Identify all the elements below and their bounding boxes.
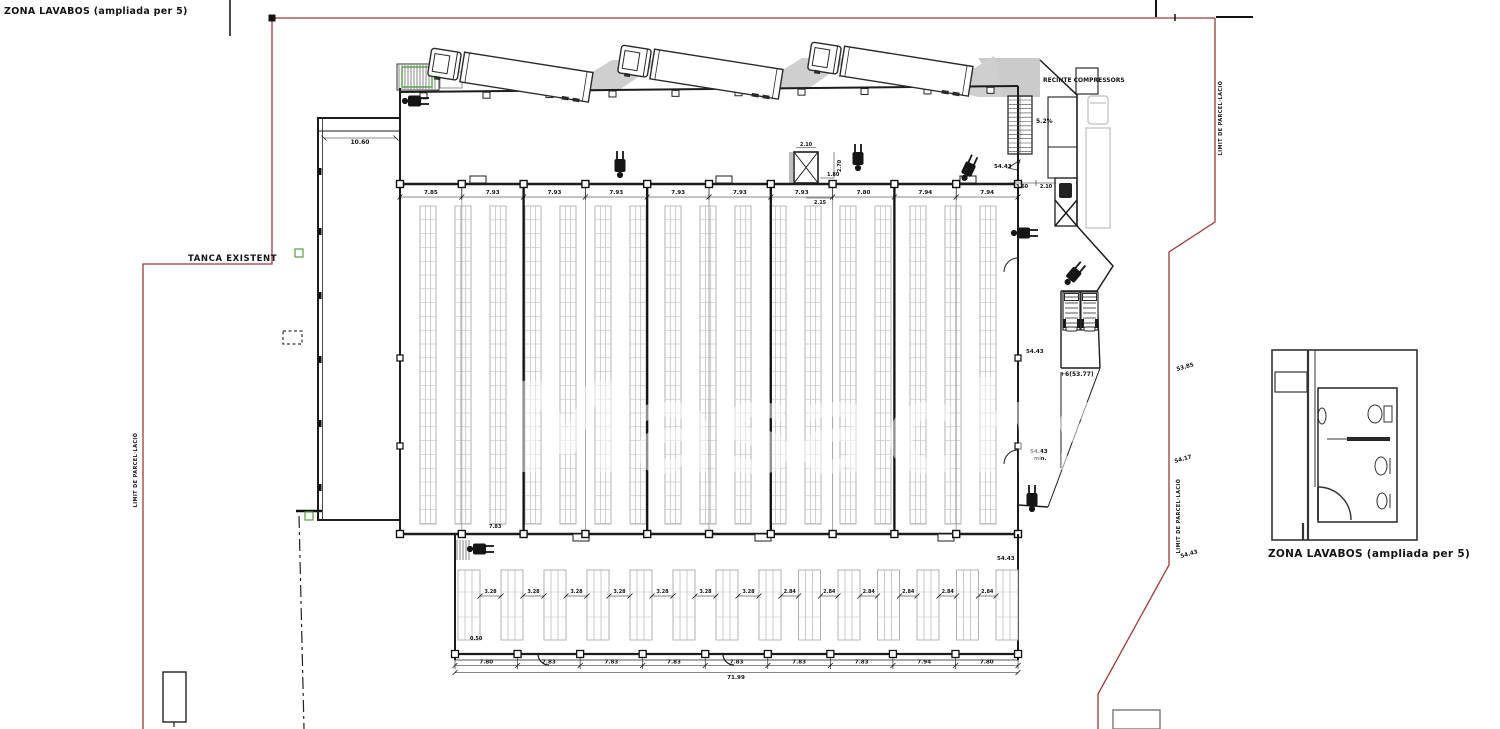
spot-elevation: 53.85	[1176, 362, 1195, 373]
hall-column	[644, 181, 651, 188]
boundary-corner-marker	[269, 15, 276, 22]
hall-column	[520, 531, 527, 538]
hall-column	[706, 181, 713, 188]
annex-offset-dimension: 0.50	[470, 636, 483, 642]
hall-column	[644, 531, 651, 538]
rack	[838, 570, 860, 640]
limit-parcellacio-label: LIMIT DE PARCEL·LACIÓ	[1217, 81, 1224, 156]
annex-column	[827, 651, 834, 658]
tanca-existent-label: TANCA EXISTENT	[188, 254, 277, 264]
forklift-icon	[615, 151, 626, 178]
storage-racks-annex	[458, 570, 1018, 640]
dim-label: 7.83	[855, 660, 869, 666]
spot-elevation: 54.43	[1026, 349, 1044, 355]
parapet-post	[798, 89, 805, 95]
sink-icon	[1318, 408, 1326, 424]
rack	[490, 206, 506, 524]
hall-column	[397, 531, 404, 538]
rack	[458, 570, 480, 640]
dim-label: 7.94	[917, 660, 931, 666]
rack	[917, 570, 939, 640]
door-arc	[1318, 487, 1351, 520]
hall-column	[458, 181, 465, 188]
watermark: Masachs	[505, 357, 1131, 502]
loading-dock	[397, 41, 1040, 104]
left-wing	[318, 118, 400, 520]
forklift-icon	[1011, 228, 1038, 239]
top-left-caption: ZONA LAVABOS (ampliada per 5)	[4, 6, 188, 17]
dim-label: 7.80	[857, 190, 871, 196]
rack	[501, 570, 523, 640]
spot-elevation: 54.43	[997, 556, 1015, 562]
annex-column	[452, 651, 459, 658]
top-bay-dimensions: 7.857.937.937.937.937.937.937.807.947.94	[398, 188, 1021, 200]
truck	[617, 44, 783, 101]
dim-label: 7.83	[604, 660, 618, 666]
hall-column	[706, 531, 713, 538]
limit-parcellacio-label: LIMIT DE PARCEL·LACIÓ	[132, 433, 139, 508]
truck	[427, 47, 593, 104]
dim-label: 3.28	[742, 589, 755, 595]
rack	[957, 570, 979, 640]
dim-label: 7.93	[486, 190, 500, 196]
hall-column	[767, 181, 774, 188]
rack	[716, 570, 738, 640]
entry-dimension: 2.10	[1040, 184, 1053, 190]
ramp-slope-label: 5.2%	[1036, 118, 1053, 125]
rack	[455, 206, 471, 524]
hall-column	[520, 181, 527, 188]
dim-label: 2.84	[863, 589, 876, 595]
dim-label: 7.94	[980, 190, 994, 196]
spot-elevation: 54.43	[1180, 549, 1199, 560]
dim-label: 7.83	[792, 660, 806, 666]
dim-label: 7.80	[479, 660, 493, 666]
dim-label: 7.93	[609, 190, 623, 196]
bathroom-detail	[1272, 350, 1417, 540]
parapet-post	[861, 89, 868, 95]
counter-shelf	[1327, 437, 1390, 441]
green-marker	[295, 249, 303, 257]
spot-elevation: 54.17	[1174, 454, 1193, 465]
dim-label: 7.94	[918, 190, 932, 196]
ghost-truck	[1086, 96, 1110, 228]
parapet-post	[609, 91, 616, 97]
toilet-icon	[1377, 493, 1390, 509]
dim-label: 7.83	[667, 660, 681, 666]
forklift-icon	[853, 144, 864, 171]
dim-label: 3.28	[699, 589, 712, 595]
entry-dimension: 3.60	[1016, 184, 1029, 190]
dim-label: 3.28	[613, 589, 626, 595]
dim-label: 3.28	[656, 589, 669, 595]
dim-label: 7.93	[795, 190, 809, 196]
forklift-icon	[402, 96, 429, 107]
dim-label: 2.84	[902, 589, 915, 595]
hall-column	[829, 181, 836, 188]
dim-label: 3.28	[570, 589, 583, 595]
annex-column	[514, 651, 521, 658]
hall-column	[891, 181, 898, 188]
forklift-icon	[467, 544, 494, 555]
toilet-icon	[1368, 405, 1392, 423]
dim-label: 7.93	[733, 190, 747, 196]
dim-label: 2.84	[942, 589, 955, 595]
hall-column	[458, 531, 465, 538]
annex-column	[702, 651, 709, 658]
sink-icon	[1375, 457, 1390, 475]
parapet-post	[987, 87, 994, 93]
hall-column	[767, 531, 774, 538]
dim-label: 2.84	[823, 589, 836, 595]
site-plan-page: 10.60 7	[0, 0, 1500, 729]
stair-dim: 2.70	[837, 159, 843, 172]
stair-dim: 2.15	[814, 200, 827, 206]
hall-column	[953, 531, 960, 538]
rack	[799, 570, 821, 640]
rack	[673, 570, 695, 640]
hall-column	[397, 181, 404, 188]
door-arc	[1004, 258, 1018, 272]
dim-label: 7.85	[424, 190, 438, 196]
annex-column	[639, 651, 646, 658]
rack	[630, 570, 652, 640]
dim-label: 3.28	[484, 589, 497, 595]
hall-column	[953, 181, 960, 188]
total-length-dimension: 71.99	[727, 675, 745, 681]
spot-elevation: 54.43	[994, 164, 1012, 170]
floor-plan-svg: 10.60 7	[0, 0, 1500, 729]
annex-column	[1015, 651, 1022, 658]
hall-column	[891, 531, 898, 538]
hall-column	[582, 531, 589, 538]
parked-truck	[1081, 292, 1098, 331]
small-structure	[163, 672, 186, 722]
existing-fence	[163, 249, 322, 729]
forklift-icon	[1061, 260, 1087, 288]
rack	[878, 570, 900, 640]
parapet-post	[672, 90, 679, 96]
elevator	[1055, 178, 1077, 226]
dashed-box	[283, 331, 302, 344]
dim-label: 7.93	[548, 190, 562, 196]
dim-label: 7.83	[542, 660, 556, 666]
rack	[587, 570, 609, 640]
wing-width-dimension: 10.60	[351, 139, 370, 146]
dim-label: 3.28	[527, 589, 540, 595]
annex-column	[577, 651, 584, 658]
bottom-edge-structure	[1113, 710, 1160, 729]
rack	[759, 570, 781, 640]
rack	[996, 570, 1018, 640]
detail-caption: ZONA LAVABOS (ampliada per 5)	[1268, 548, 1470, 560]
limit-parcellacio-label: LIMIT DE PARCEL·LACIÓ	[1175, 479, 1182, 554]
annex-column	[952, 651, 959, 658]
rack	[544, 570, 566, 640]
hall-column	[582, 181, 589, 188]
parapet-post	[483, 92, 490, 98]
hall-column	[829, 531, 836, 538]
interior-bay-dimension: 7.83	[489, 524, 502, 530]
dim-label: 7.93	[671, 190, 685, 196]
annex-column	[764, 651, 771, 658]
green-marker	[305, 512, 313, 520]
dim-label: 2.84	[981, 589, 994, 595]
stair-dim: 2.10	[800, 142, 813, 148]
truck	[807, 41, 973, 98]
dim-label: 7.83	[730, 660, 744, 666]
dim-label: 7.80	[980, 660, 994, 666]
annex-column	[889, 651, 896, 658]
rack	[420, 206, 436, 524]
compressors-label: RECINTE COMPRESSORS	[1043, 77, 1125, 84]
dim-label: 2.84	[784, 589, 797, 595]
parked-truck	[1063, 292, 1080, 331]
